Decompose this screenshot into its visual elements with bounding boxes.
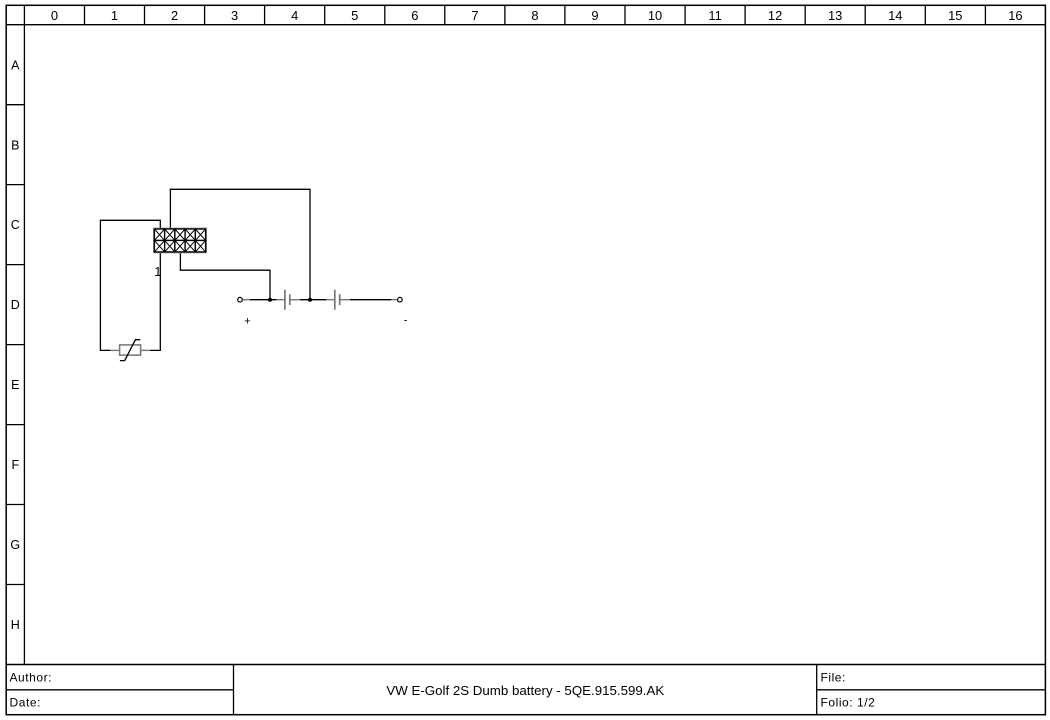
svg-text:15: 15 xyxy=(948,8,962,23)
svg-text:H: H xyxy=(11,618,20,632)
svg-text:6: 6 xyxy=(411,8,418,23)
svg-text:2: 2 xyxy=(171,8,178,23)
svg-text:-: - xyxy=(404,314,408,326)
svg-text:8: 8 xyxy=(531,8,538,23)
svg-text:1: 1 xyxy=(111,8,118,23)
svg-text:3: 3 xyxy=(231,8,238,23)
svg-text:1: 1 xyxy=(154,264,161,279)
svg-text:5: 5 xyxy=(351,8,358,23)
svg-text:13: 13 xyxy=(828,8,842,23)
svg-text:+: + xyxy=(244,315,250,327)
svg-text:14: 14 xyxy=(888,8,902,23)
svg-text:A: A xyxy=(11,58,20,72)
svg-text:File:: File: xyxy=(821,671,846,685)
svg-text:Folio: 1/2: Folio: 1/2 xyxy=(821,695,876,709)
svg-text:F: F xyxy=(11,458,19,472)
svg-text:10: 10 xyxy=(648,8,662,23)
svg-text:Date:: Date: xyxy=(10,695,41,709)
svg-text:B: B xyxy=(11,138,19,152)
svg-text:4: 4 xyxy=(291,8,298,23)
svg-text:E: E xyxy=(11,378,19,392)
svg-text:C: C xyxy=(11,218,20,232)
svg-text:9: 9 xyxy=(591,8,598,23)
svg-text:16: 16 xyxy=(1008,8,1022,23)
svg-text:7: 7 xyxy=(471,8,478,23)
svg-text:D: D xyxy=(11,298,20,312)
svg-text:Author:: Author: xyxy=(10,671,53,685)
svg-text:G: G xyxy=(10,538,20,552)
svg-text:11: 11 xyxy=(708,8,721,23)
svg-text:0: 0 xyxy=(51,8,58,23)
svg-text:12: 12 xyxy=(768,8,782,23)
svg-text:VW E-Golf 2S Dumb battery - 5Q: VW E-Golf 2S Dumb battery - 5QE.915.599.… xyxy=(386,683,664,698)
